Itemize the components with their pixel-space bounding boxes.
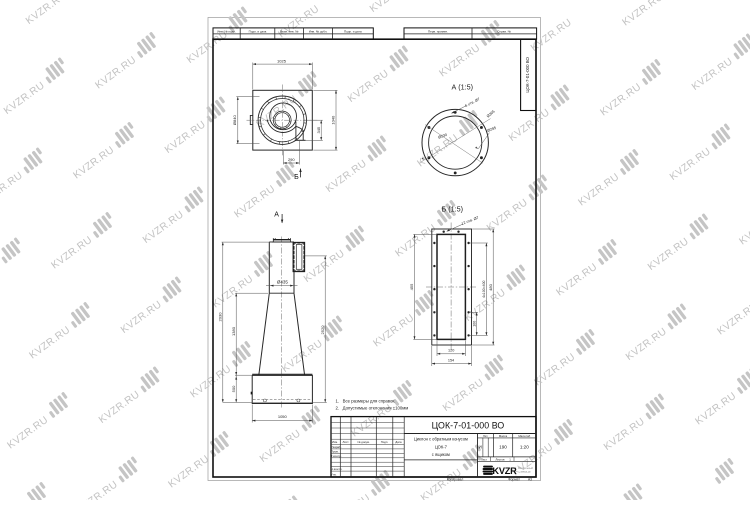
svg-text:завод.ру: завод.ру [520, 471, 531, 474]
svg-text:Перв. примен.: Перв. примен. [428, 30, 448, 34]
svg-text:Масса: Масса [499, 434, 508, 438]
svg-text:Лит.: Лит. [483, 434, 488, 438]
svg-text:Циклон с обратным конусом: Циклон с обратным конусом [414, 437, 468, 442]
svg-text:455: 455 [409, 283, 414, 290]
svg-text:Вентильный: Вентильный [518, 466, 533, 470]
svg-text:Дата: Дата [395, 440, 402, 444]
svg-text:Изм.: Изм. [332, 440, 338, 444]
svg-text:4х100=400: 4х100=400 [482, 280, 486, 297]
svg-text:Т.контр.: Т.контр. [331, 454, 342, 458]
svg-text:Утв.: Утв. [331, 473, 337, 477]
svg-text:Копировал: Копировал [447, 477, 464, 481]
svg-text:Разраб.: Разраб. [331, 445, 342, 449]
svg-text:№ докум.: № докум. [357, 440, 370, 444]
svg-text:2030: 2030 [217, 312, 222, 322]
svg-text:Инв. № дубл.: Инв. № дубл. [309, 30, 328, 34]
svg-text:Формат: Формат [508, 477, 520, 481]
svg-text:Б: Б [294, 174, 299, 181]
svg-text:Н.контр.: Н.контр. [331, 467, 343, 471]
svg-text:1:20: 1:20 [520, 444, 529, 449]
svg-text:480: 480 [488, 283, 493, 290]
svg-text:Ø840: Ø840 [232, 115, 237, 126]
svg-text:А (1:5): А (1:5) [452, 82, 474, 91]
svg-text:Масштаб: Масштаб [518, 434, 530, 438]
svg-text:Подп. и дата: Подп. и дата [344, 30, 362, 34]
svg-text:Лист: Лист [481, 457, 488, 461]
svg-text:500: 500 [231, 385, 236, 392]
svg-text:И: И [479, 444, 482, 449]
svg-text:Подп. и дата: Подп. и дата [249, 30, 267, 34]
svg-text:345: 345 [316, 126, 321, 133]
svg-text:А3: А3 [528, 477, 532, 481]
svg-text:Справ. №: Справ. № [497, 30, 511, 34]
svg-text:А: А [274, 211, 279, 218]
svg-text:1040: 1040 [331, 115, 336, 125]
svg-text:Б (1:5): Б (1:5) [442, 205, 464, 214]
svg-text:290: 290 [288, 157, 295, 162]
svg-text:2. Допустимые отклонения ±10: 2. Допустимые отклонения ±100мм [336, 406, 409, 411]
svg-text:Пров.: Пров. [331, 450, 339, 454]
svg-text:Листов: Листов [495, 457, 505, 461]
svg-text:154: 154 [448, 358, 454, 362]
svg-text:1050: 1050 [278, 414, 288, 419]
svg-text:Взам. инв. №: Взам. инв. № [280, 30, 299, 34]
svg-text:KVZR: KVZR [492, 466, 517, 476]
svg-text:Подп.: Подп. [381, 440, 389, 444]
svg-text:Лист: Лист [343, 440, 350, 444]
svg-text:ЦОК-7-01-000 ВО: ЦОК-7-01-000 ВО [432, 421, 505, 431]
svg-text:с ящиком: с ящиком [432, 452, 450, 457]
svg-text:1. Все размеры для справок.: 1. Все размеры для справок. [336, 398, 396, 403]
svg-text:1025: 1025 [277, 58, 287, 63]
svg-text:ЦОК-7: ЦОК-7 [435, 445, 448, 450]
svg-text:Ø435: Ø435 [277, 280, 289, 285]
svg-text:2520: 2520 [320, 325, 325, 335]
svg-text:1380: 1380 [231, 326, 236, 336]
svg-text:100: 100 [472, 321, 476, 327]
svg-text:Инв. № подл.: Инв. № подл. [217, 30, 236, 34]
svg-text:120: 120 [448, 349, 454, 353]
svg-text:190: 190 [499, 444, 507, 449]
svg-text:ЦОК-7-01-000 ВО: ЦОК-7-01-000 ВО [525, 56, 530, 92]
